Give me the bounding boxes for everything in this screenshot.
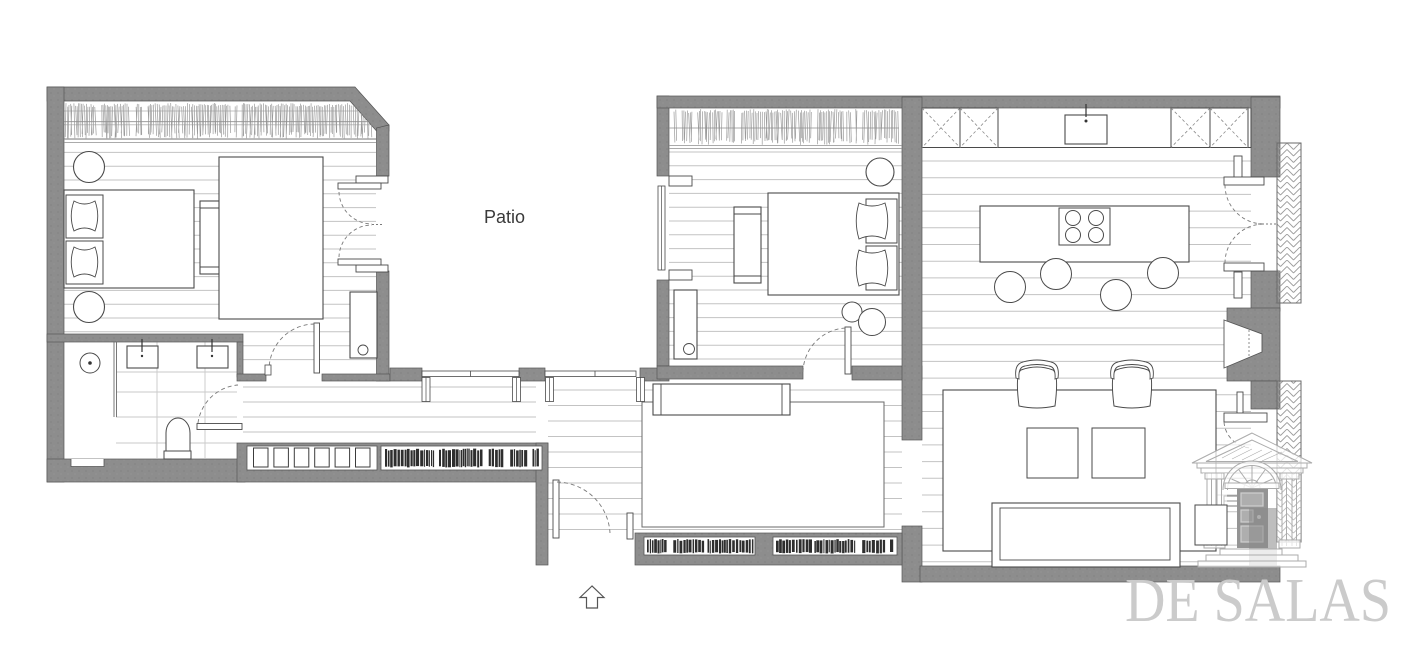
svg-text:DE SALAS: DE SALAS — [1125, 567, 1391, 635]
svg-text:Patio: Patio — [484, 207, 525, 227]
